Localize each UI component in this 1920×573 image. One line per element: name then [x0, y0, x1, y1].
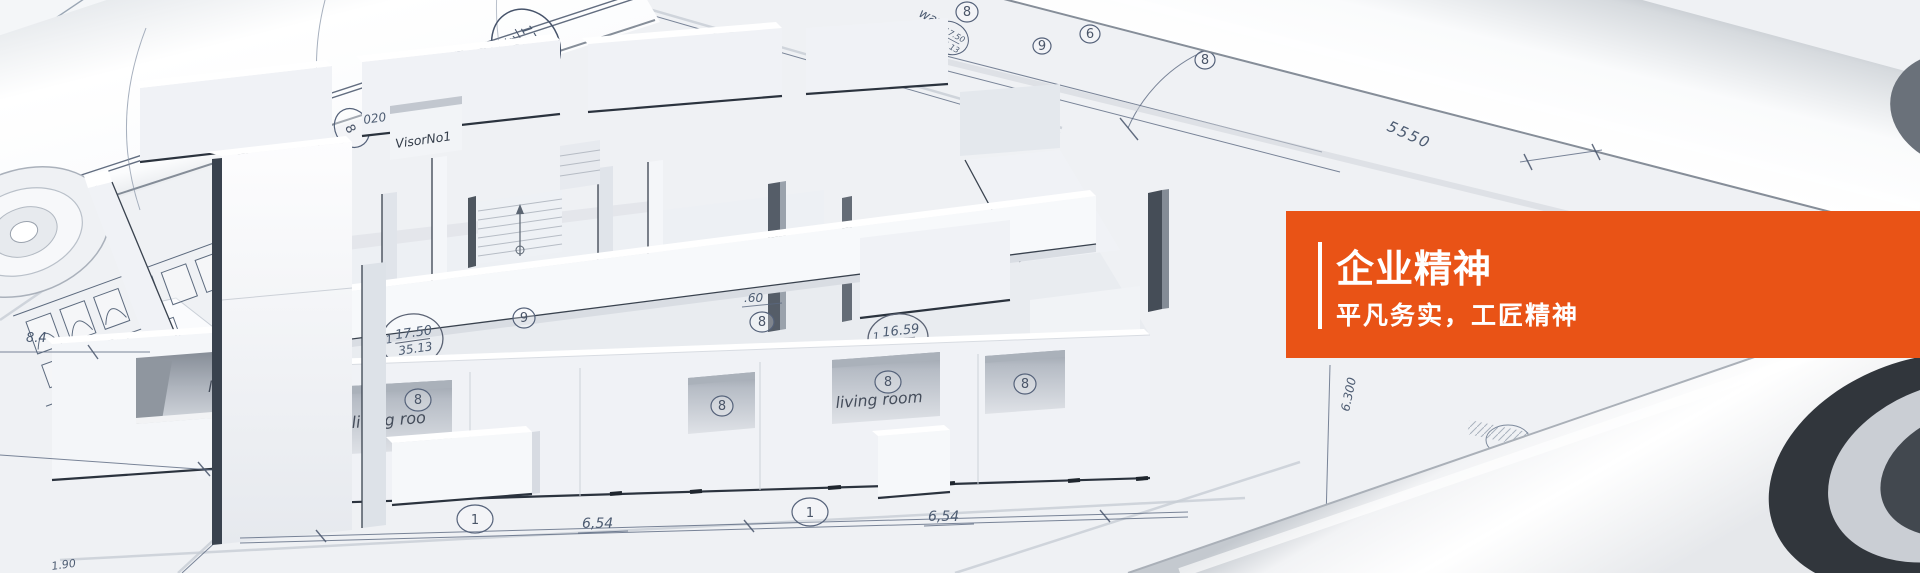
mark-9: 9 [1038, 39, 1046, 54]
mark-1: 1 [471, 513, 479, 528]
dim-654-left: 6,54 [582, 516, 613, 532]
panel-subtitle: 平凡务实，工匠精神 [1336, 303, 1579, 328]
mark-9: 9 [520, 311, 528, 326]
dim-060: .60 [744, 291, 763, 305]
floorplan-3d-model: VisorNo1 020 1 17.50 35.13 1 16.59 [46, 18, 1169, 545]
mark-8: 8 [963, 5, 971, 20]
mark-1: 1 [806, 506, 814, 521]
mark-8: 8 [1201, 53, 1209, 68]
accent-panel: 企业精神 平凡务实，工匠精神 [1286, 211, 1920, 358]
dim-654-right: 6,54 [928, 509, 959, 525]
panel-divider [1318, 242, 1322, 329]
mark-6: 6 [1086, 27, 1094, 42]
dim-84: 8.4 [26, 331, 47, 346]
mark-8: 8 [884, 375, 892, 390]
mark-8: 8 [1021, 377, 1029, 392]
mark-8: 8 [718, 399, 726, 414]
mark-8: 8 [758, 315, 766, 330]
mark-8: 8 [414, 393, 422, 408]
panel-title: 企业精神 [1336, 250, 1492, 288]
hero-banner: 8 8 6 9 way 1.29 17.50 35.13 5550 [0, 0, 1920, 573]
